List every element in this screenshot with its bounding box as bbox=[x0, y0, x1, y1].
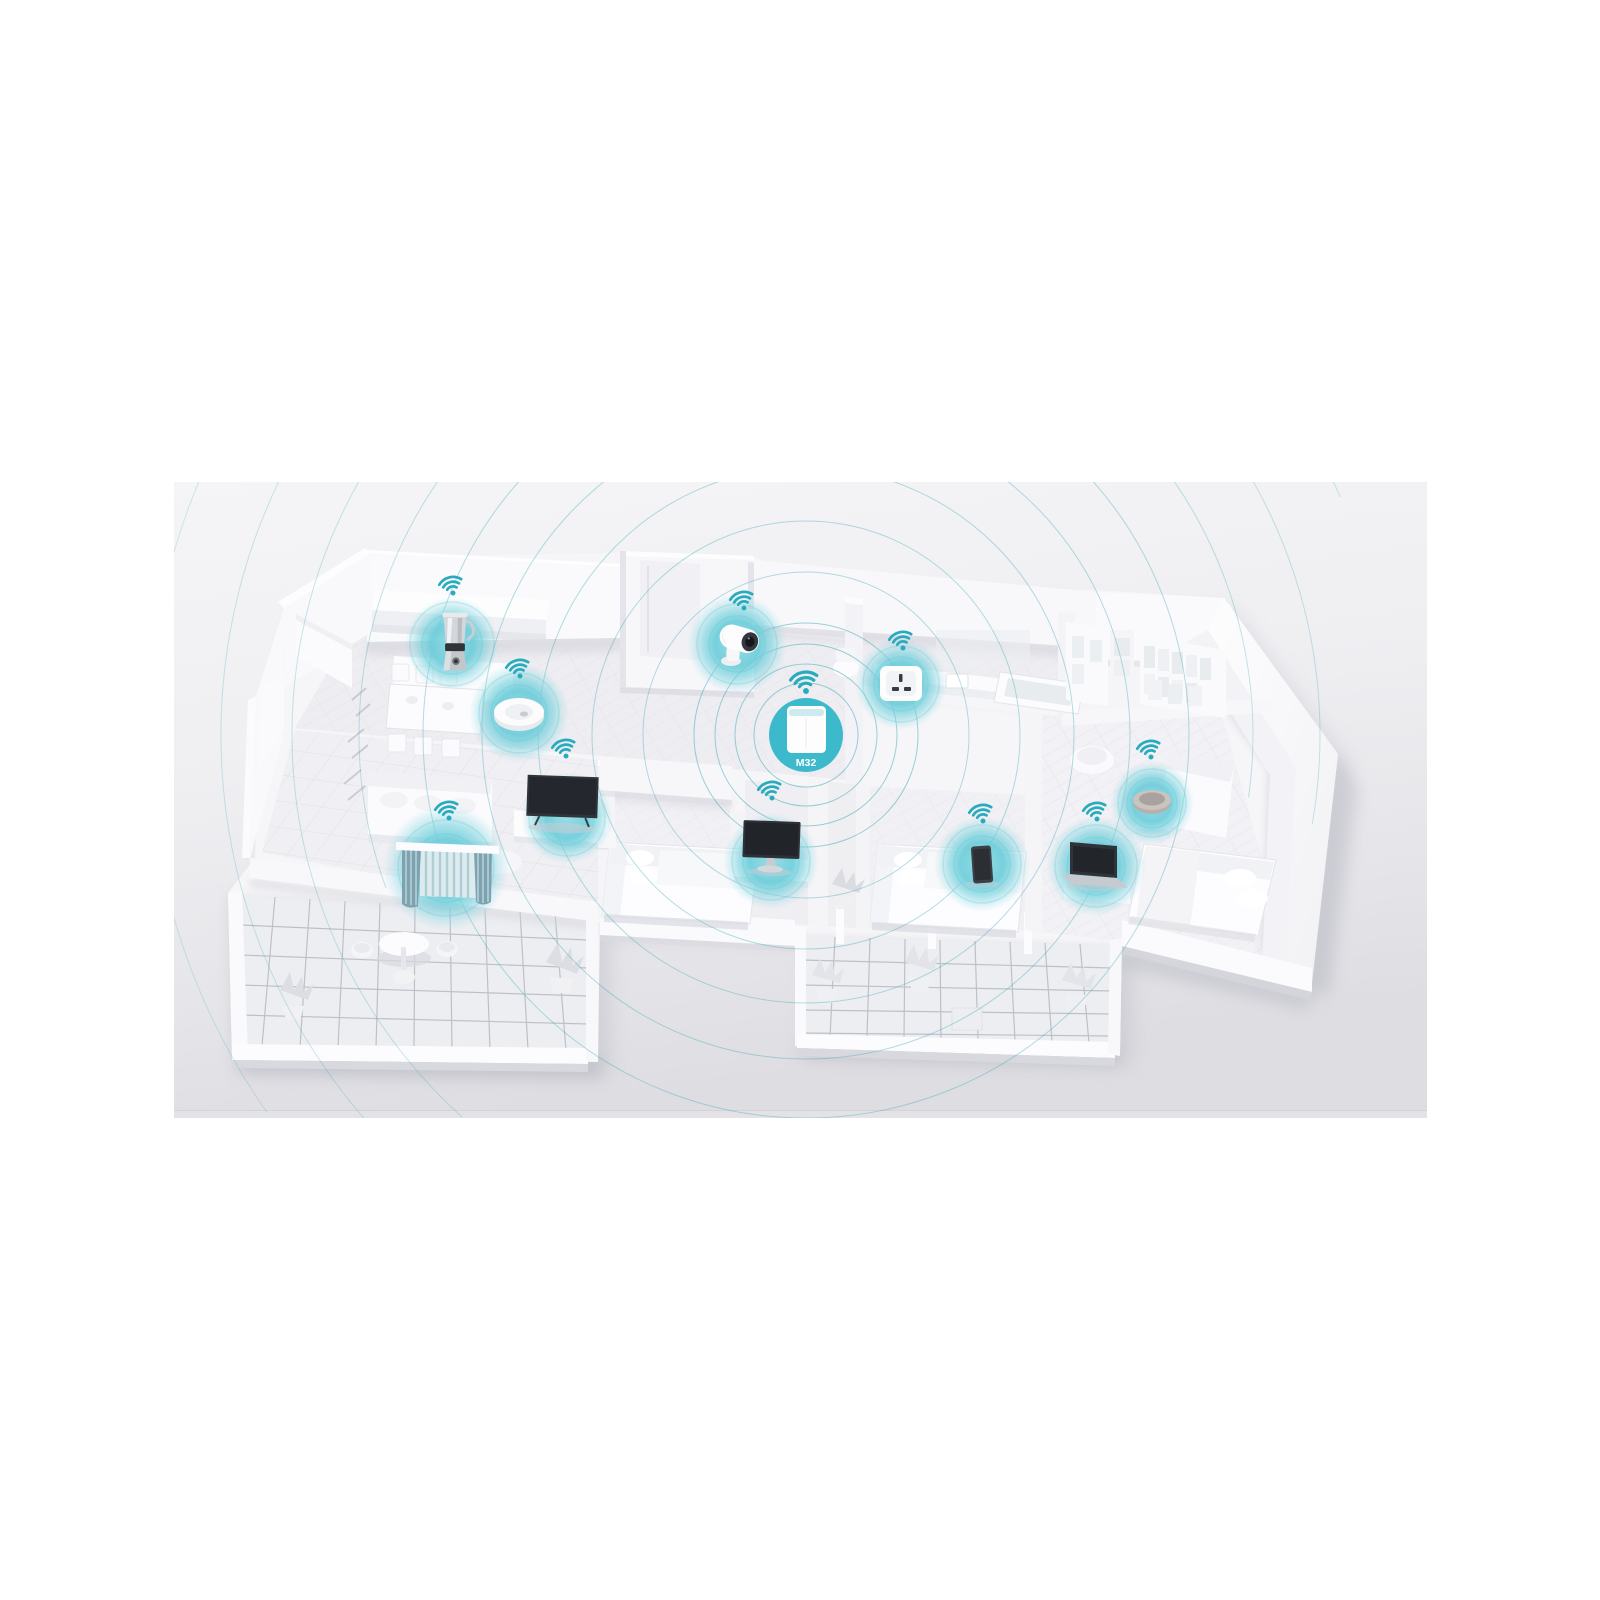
svg-text:M32: M32 bbox=[796, 757, 817, 769]
